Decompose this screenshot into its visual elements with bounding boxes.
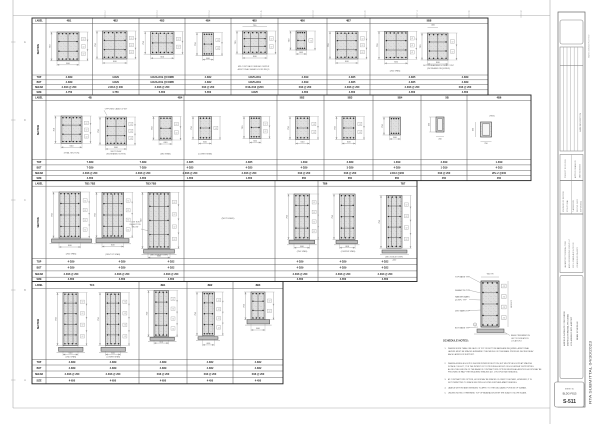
svg-text:#2: #2 bbox=[84, 220, 86, 222]
svg-text:BEAM SCHEDULE: BEAM SCHEDULE bbox=[576, 321, 579, 340]
svg-text:#2: #2 bbox=[130, 38, 132, 40]
svg-text:#2: #2 bbox=[411, 52, 413, 54]
svg-text:4B1: 4B1 bbox=[67, 19, 72, 23]
svg-text:4B4: 4B4 bbox=[206, 19, 211, 23]
svg-text:4-650: 4-650 bbox=[340, 278, 347, 281]
svg-text:4-D29: 4-D29 bbox=[68, 260, 75, 263]
svg-text:SCHEDULE NOTES:: SCHEDULE NOTES: bbox=[443, 339, 469, 343]
svg-text:(NOT USED): (NOT USED) bbox=[222, 218, 235, 220]
svg-text:#2: #2 bbox=[405, 239, 407, 241]
svg-text:T. ANDERSON: T. ANDERSON bbox=[572, 199, 575, 212]
svg-text:(2) SPC TYP: (2) SPC TYP bbox=[455, 299, 467, 301]
svg-text:#2: #2 bbox=[172, 328, 174, 330]
svg-text:HANGER BARS: HANGER BARS bbox=[455, 296, 470, 299]
svg-text:BOT: BOT bbox=[37, 267, 42, 269]
svg-text:#2: #2 bbox=[411, 38, 413, 40]
svg-text:4-D22: 4-D22 bbox=[168, 266, 175, 269]
svg-text:2-D19: 2-D19 bbox=[302, 81, 309, 84]
svg-text:4-D22: 4-D22 bbox=[255, 367, 262, 370]
svg-text:4-D22: 4-D22 bbox=[382, 266, 389, 269]
svg-text:#2: #2 bbox=[264, 124, 266, 126]
svg-text:7B7: 7B7 bbox=[401, 181, 406, 185]
svg-text:4-D29: 4-D29 bbox=[110, 361, 117, 364]
svg-text:5B4: 5B4 bbox=[398, 96, 403, 100]
svg-text:(2ND/TOP SPAN): (2ND/TOP SPAN) bbox=[105, 253, 120, 256]
svg-text:SECTION AT: SECTION AT bbox=[110, 150, 122, 153]
svg-text:#2: #2 bbox=[173, 227, 175, 229]
svg-text:#2: #2 bbox=[130, 124, 132, 126]
svg-text:3-D29: 3-D29 bbox=[347, 161, 354, 164]
svg-text:#2: #2 bbox=[217, 40, 219, 42]
svg-text:#2: #2 bbox=[313, 202, 315, 204]
svg-text:2-D16 @ 200: 2-D16 @ 200 bbox=[336, 273, 351, 276]
svg-text:4-D29: 4-D29 bbox=[301, 166, 308, 169]
svg-text:#2: #2 bbox=[177, 39, 179, 41]
svg-text:#2: #2 bbox=[218, 300, 220, 302]
svg-text:2-D16 @ 200: 2-D16 @ 200 bbox=[405, 86, 420, 89]
svg-text:4-D29: 4-D29 bbox=[112, 76, 119, 79]
svg-text:LAX AIRPORT TERMINAL CORE: LAX AIRPORT TERMINAL CORE bbox=[564, 240, 567, 268]
svg-text:#2: #2 bbox=[359, 124, 361, 126]
svg-text:#2: #2 bbox=[264, 131, 266, 133]
svg-text:TOP: TOP bbox=[37, 362, 42, 364]
svg-text:4-650: 4-650 bbox=[160, 379, 167, 382]
svg-text:(SECTION AT STEP): (SECTION AT STEP) bbox=[150, 254, 168, 257]
svg-text:#2: #2 bbox=[130, 138, 132, 140]
svg-text:4-D29: 4-D29 bbox=[340, 266, 347, 269]
svg-text:2-650: 2-650 bbox=[302, 91, 309, 94]
svg-text:4-D22+D19 @COMB: 4-D22+D19 @COMB bbox=[150, 81, 174, 84]
svg-text:LOS ANGELES INTL AIRPORT: LOS ANGELES INTL AIRPORT bbox=[570, 316, 573, 346]
svg-text:#2: #2 bbox=[451, 51, 453, 53]
svg-text:#2: #2 bbox=[313, 132, 315, 134]
svg-text:4B5: 4B5 bbox=[252, 19, 257, 23]
svg-text:#2: #2 bbox=[218, 309, 220, 311]
svg-text:4-D22: 4-D22 bbox=[207, 361, 214, 364]
svg-text:7-D29: 7-D29 bbox=[87, 166, 94, 169]
svg-text:#2: #2 bbox=[361, 38, 363, 40]
svg-text:7B6: 7B6 bbox=[323, 181, 328, 185]
svg-text:4-D25: 4-D25 bbox=[251, 91, 258, 94]
svg-text:SHEAR: SHEAR bbox=[35, 86, 43, 89]
svg-text:D16 @ 200: D16 @ 200 bbox=[459, 86, 472, 89]
svg-text:4-650: 4-650 bbox=[68, 278, 75, 281]
svg-text:4-650: 4-650 bbox=[409, 91, 416, 94]
svg-text:#2: #2 bbox=[268, 311, 270, 313]
svg-text:2Px-2 @200: 2Px-2 @200 bbox=[492, 172, 507, 175]
svg-text:450: 450 bbox=[497, 177, 502, 180]
svg-text:#2: #2 bbox=[173, 239, 175, 241]
svg-text:#2: #2 bbox=[173, 214, 175, 216]
svg-text:#2: #2 bbox=[313, 222, 315, 224]
svg-text:#2: #2 bbox=[127, 229, 129, 231]
svg-text:SHEAR: SHEAR bbox=[35, 373, 43, 376]
svg-text:ADDITIONAL SHEAR HOOKS REQD: ADDITIONAL SHEAR HOOKS REQD bbox=[238, 68, 270, 71]
svg-text:5B3: 5B3 bbox=[348, 96, 353, 100]
svg-text:DATE 04/30/2023: DATE 04/30/2023 bbox=[579, 164, 582, 178]
svg-text:NOT PERMITTED TO SPACE MULTIPL: NOT PERMITTED TO SPACE MULTIPLE HOOPED F… bbox=[448, 381, 518, 384]
svg-text:#2: #2 bbox=[124, 313, 126, 315]
svg-text:#2: #2 bbox=[177, 47, 179, 49]
svg-text:4-D13: 4-D13 bbox=[496, 166, 503, 169]
svg-text:4-D29: 4-D29 bbox=[160, 367, 167, 370]
svg-text:1-D19: 1-D19 bbox=[394, 161, 401, 164]
svg-text:4-D25: 4-D25 bbox=[409, 81, 416, 84]
svg-text:4-650: 4-650 bbox=[69, 379, 76, 382]
svg-text:SECTION: SECTION bbox=[38, 217, 40, 228]
svg-text:DIST BARS TYP: DIST BARS TYP bbox=[455, 310, 471, 313]
svg-text:#2: #2 bbox=[81, 302, 83, 304]
svg-text:4-D25: 4-D25 bbox=[409, 76, 416, 79]
svg-text:4-750: 4-750 bbox=[112, 91, 119, 94]
svg-text:#2: #2 bbox=[130, 52, 132, 54]
svg-text:#2: #2 bbox=[361, 52, 363, 54]
svg-text:#2: #2 bbox=[270, 46, 272, 48]
svg-text:#2: #2 bbox=[175, 124, 177, 126]
svg-text:LABEL: LABEL bbox=[35, 284, 43, 287]
svg-text:4-450: 4-450 bbox=[207, 379, 214, 382]
svg-text:SECTION: SECTION bbox=[38, 125, 40, 136]
svg-text:BOT: BOT bbox=[37, 368, 42, 370]
svg-text:(LOWER SPAN): (LOWER SPAN) bbox=[198, 153, 212, 156]
svg-text:4-D29: 4-D29 bbox=[110, 367, 117, 370]
svg-text:4-D25: 4-D25 bbox=[349, 81, 356, 84]
svg-text:5B: 5B bbox=[445, 96, 448, 100]
svg-text:BOT: BOT bbox=[37, 82, 42, 84]
svg-text:(SECTION AT STEP): (SECTION AT STEP) bbox=[385, 256, 403, 259]
svg-text:ARCH ENGINEERING GROUP LLP: ARCH ENGINEERING GROUP LLP bbox=[568, 238, 571, 268]
svg-text:4B2: 4B2 bbox=[113, 19, 118, 23]
svg-text:#2: #2 bbox=[82, 39, 84, 41]
svg-text:5-650: 5-650 bbox=[159, 91, 166, 94]
svg-text:(INCREASED NOTES): (INCREASED NOTES) bbox=[106, 153, 126, 156]
svg-text:SIZE: SIZE bbox=[36, 178, 42, 180]
svg-text:4B4: 4B4 bbox=[178, 96, 183, 100]
svg-text:4B6: 4B6 bbox=[497, 96, 502, 100]
svg-text:LABEL: LABEL bbox=[35, 97, 43, 100]
svg-text:(2ND SPAN): (2ND SPAN) bbox=[66, 355, 77, 358]
svg-text:2-D13 @200: 2-D13 @200 bbox=[390, 172, 405, 175]
svg-text:EACH LAYER FOR SUPPORT.: EACH LAYER FOR SUPPORT. bbox=[448, 353, 475, 356]
svg-text:2-D16 @ 200: 2-D16 @ 200 bbox=[136, 172, 151, 175]
svg-text:(2ND SPAN): (2ND SPAN) bbox=[390, 69, 401, 72]
svg-text:4-D25: 4-D25 bbox=[246, 161, 253, 164]
svg-text:#2: #2 bbox=[313, 231, 315, 233]
svg-text:WIDTH: WIDTH bbox=[487, 274, 494, 276]
svg-text:D13 @ 200: D13 @ 200 bbox=[204, 373, 217, 376]
svg-text:2-D16 @ 200: 2-D16 @ 200 bbox=[293, 273, 308, 276]
svg-text:MIDFIELD TERMINAL PROGRAM: MIDFIELD TERMINAL PROGRAM bbox=[567, 314, 570, 346]
svg-text:1-D19: 1-D19 bbox=[496, 161, 503, 164]
svg-text:NOTCH BEAM AND HI DEAL CONT: NOTCH BEAM AND HI DEAL CONT bbox=[423, 64, 455, 67]
svg-text:ALONG THE LENGTH OF THE BEAM.: ALONG THE LENGTH OF THE BEAM. IF CONTRAC… bbox=[448, 368, 542, 371]
svg-text:8B1: 8B1 bbox=[161, 283, 166, 287]
svg-text:2-D16 @ 200: 2-D16 @ 200 bbox=[115, 273, 130, 276]
svg-text:1-650: 1-650 bbox=[187, 177, 194, 180]
svg-text:#2: #2 bbox=[218, 327, 220, 329]
svg-text:#2: #2 bbox=[215, 128, 217, 130]
svg-text:4-650: 4-650 bbox=[168, 278, 175, 281]
svg-text:#2: #2 bbox=[124, 325, 126, 327]
svg-text:4-D29: 4-D29 bbox=[112, 81, 119, 84]
svg-text:350 S. GRAND AVE SUITE 100: 350 S. GRAND AVE SUITE 100 bbox=[572, 243, 575, 268]
svg-text:4-D25+D19: 4-D25+D19 bbox=[248, 76, 261, 79]
svg-text:#2: #2 bbox=[127, 220, 129, 222]
svg-text:2-D13 @ 200: 2-D13 @ 200 bbox=[164, 273, 179, 276]
svg-text:(INCREASED REQUIRED): (INCREASED REQUIRED) bbox=[427, 67, 450, 70]
svg-text:4-D29: 4-D29 bbox=[340, 260, 347, 263]
svg-text:#2: #2 bbox=[85, 136, 87, 138]
svg-text:TOP: TOP bbox=[37, 261, 42, 263]
svg-text:1-650: 1-650 bbox=[246, 177, 253, 180]
svg-text:5B2: 5B2 bbox=[300, 96, 305, 100]
svg-text:ENGINEER OF RECORD: ENGINEER OF RECORD bbox=[563, 191, 565, 212]
svg-text:LABELS WITH RV ARE INTENDED TO: LABELS WITH RV ARE INTENDED TO APPLY TO … bbox=[448, 387, 527, 390]
svg-text:#2: #2 bbox=[175, 132, 177, 134]
svg-text:SHEAR: SHEAR bbox=[35, 172, 43, 175]
svg-text:TOP: TOP bbox=[37, 77, 42, 79]
svg-text:SHEET ID: SHEET ID bbox=[565, 389, 575, 391]
svg-text:#2: #2 bbox=[127, 201, 129, 203]
svg-text:#2: #2 bbox=[130, 131, 132, 133]
svg-text:HEIGHT: HEIGHT bbox=[511, 299, 513, 307]
svg-text:APPD BY DRAWN BY: APPD BY DRAWN BY bbox=[574, 159, 577, 178]
svg-text:SECTION: SECTION bbox=[38, 44, 40, 55]
svg-text:650: 650 bbox=[302, 177, 307, 180]
svg-text:SHEAR TIE TYP: SHEAR TIE TYP bbox=[455, 289, 471, 292]
svg-text:4-650: 4-650 bbox=[382, 278, 389, 281]
svg-text:(MID SPAN): (MID SPAN) bbox=[160, 153, 171, 156]
svg-text:5-650: 5-650 bbox=[205, 91, 212, 94]
svg-text:D16+D13 @200: D16+D13 @200 bbox=[246, 86, 265, 89]
svg-text:#2: #2 bbox=[84, 210, 86, 212]
svg-text:4-D22: 4-D22 bbox=[207, 367, 214, 370]
svg-text:4-D29: 4-D29 bbox=[297, 260, 304, 263]
svg-text:WHERE MORE THAN ONE JACK OF TO: WHERE MORE THAN ONE JACK OF TOP OR BOTTO… bbox=[448, 347, 529, 350]
svg-text:(CENTER SPAN): (CENTER SPAN) bbox=[341, 250, 356, 253]
svg-text:D16 @ 200: D16 @ 200 bbox=[157, 373, 170, 376]
svg-text:OPPOSED CABLE @ W/T: OPPOSED CABLE @ W/T bbox=[105, 107, 128, 110]
svg-text:#2: #2 bbox=[270, 38, 272, 40]
svg-text:#2: #2 bbox=[217, 48, 219, 50]
svg-text:#2: #2 bbox=[451, 41, 453, 43]
svg-text:EXP 06/30/24: EXP 06/30/24 bbox=[581, 201, 583, 212]
svg-text:4B6: 4B6 bbox=[300, 19, 305, 23]
svg-text:D16 @ 200: D16 @ 200 bbox=[252, 373, 265, 376]
svg-text:RTA SUBMITTAL 04/30/2023: RTA SUBMITTAL 04/30/2023 bbox=[588, 340, 593, 404]
svg-text:#2: #2 bbox=[124, 336, 126, 338]
svg-text:#2: #2 bbox=[81, 325, 83, 327]
svg-text:4-650: 4-650 bbox=[297, 278, 304, 281]
svg-text:#2: #2 bbox=[411, 45, 413, 47]
svg-text:SECTION: SECTION bbox=[38, 319, 40, 330]
svg-text:2-D13 @ 200: 2-D13 @ 200 bbox=[62, 86, 77, 89]
svg-text:#2: #2 bbox=[85, 130, 87, 132]
svg-text:#2: #2 bbox=[313, 212, 315, 214]
svg-text:LABEL: LABEL bbox=[35, 20, 43, 23]
svg-text:4-D29: 4-D29 bbox=[69, 361, 76, 364]
svg-text:BLDG-F815: BLDG-F815 bbox=[563, 392, 577, 396]
svg-text:650: 650 bbox=[395, 177, 400, 180]
svg-text:(HSS): (HSS) bbox=[489, 116, 495, 118]
svg-text:4-D29: 4-D29 bbox=[69, 367, 76, 370]
svg-text:MID CONT BACK SIMILAR CENTER: MID CONT BACK SIMILAR CENTER bbox=[238, 65, 270, 68]
svg-text:7B3-7B5: 7B3-7B5 bbox=[146, 181, 157, 185]
svg-text:(2ND SPAN): (2ND SPAN) bbox=[66, 253, 77, 256]
svg-text:3-D29: 3-D29 bbox=[347, 166, 354, 169]
svg-text:#2: #2 bbox=[359, 132, 361, 134]
svg-text:UNLESS NOTED OTHERWISE, TOP OF: UNLESS NOTED OTHERWISE, TOP OF BEAM ALIG… bbox=[448, 392, 527, 395]
svg-text:2-D19: 2-D19 bbox=[441, 161, 448, 164]
svg-text:BASE PREPARATION: BASE PREPARATION bbox=[511, 334, 530, 337]
svg-text:S-511: S-511 bbox=[563, 399, 576, 405]
svg-text:4B: 4B bbox=[88, 96, 91, 100]
svg-text:#2: #2 bbox=[130, 45, 132, 47]
svg-text:450: 450 bbox=[442, 177, 447, 180]
svg-text:1-D19: 1-D19 bbox=[301, 161, 308, 164]
svg-text:LAYERS MUST BE SPACED EVENMINL: LAYERS MUST BE SPACED EVENMINLY THE MIDD… bbox=[448, 350, 534, 353]
svg-text:4-650: 4-650 bbox=[110, 379, 117, 382]
svg-text:#2: #2 bbox=[268, 301, 270, 303]
svg-text:2-D25: 2-D25 bbox=[187, 161, 194, 164]
svg-text:#2: #2 bbox=[81, 313, 83, 315]
svg-text:4-D29: 4-D29 bbox=[66, 81, 73, 84]
svg-text:#2: #2 bbox=[405, 216, 407, 218]
svg-text:AT CONTRACTORS OPTION, HOOKS M: AT CONTRACTORS OPTION, HOOKS MAY BE SPAC… bbox=[448, 378, 532, 381]
svg-text:4-D22: 4-D22 bbox=[382, 260, 389, 263]
svg-text:4-650: 4-650 bbox=[140, 177, 147, 180]
svg-text:(TRIAL SECTION): (TRIAL SECTION) bbox=[64, 151, 80, 154]
svg-text:7-D29: 7-D29 bbox=[140, 166, 147, 169]
svg-text:AIRFIELD SATELLITE CONCOURSE: AIRFIELD SATELLITE CONCOURSE bbox=[563, 311, 566, 346]
svg-text:2-D13 @ 200: 2-D13 @ 200 bbox=[108, 86, 123, 89]
svg-text:2-D16 @ 200: 2-D16 @ 200 bbox=[183, 172, 198, 175]
svg-text:4-750: 4-750 bbox=[66, 91, 73, 94]
svg-text:#2: #2 bbox=[82, 54, 84, 56]
svg-text:4-D29: 4-D29 bbox=[119, 260, 126, 263]
svg-text:2-D16 @ 200: 2-D16 @ 200 bbox=[83, 172, 98, 175]
svg-text:7-D29: 7-D29 bbox=[140, 161, 147, 164]
svg-text:PROJECT NO 21-0529: PROJECT NO 21-0529 bbox=[565, 159, 567, 178]
svg-text:4-D29: 4-D29 bbox=[119, 266, 126, 269]
svg-text:SAVED 4/28/2023 PLOTTED: SAVED 4/28/2023 PLOTTED bbox=[588, 34, 591, 58]
svg-text:4-650: 4-650 bbox=[119, 278, 126, 281]
svg-text:TOP: TOP bbox=[37, 162, 42, 164]
svg-text:4-D29: 4-D29 bbox=[462, 76, 469, 79]
svg-text:4-D29: 4-D29 bbox=[160, 361, 167, 364]
svg-text:#2: #2 bbox=[84, 200, 86, 202]
svg-text:#2: #2 bbox=[172, 309, 174, 311]
svg-text:4-D22: 4-D22 bbox=[205, 76, 212, 79]
svg-text:BOT: BOT bbox=[37, 167, 42, 169]
svg-text:(2ND SPAN): (2ND SPAN) bbox=[297, 250, 308, 253]
svg-text:+400: +400 bbox=[392, 260, 396, 262]
svg-text:#2: #2 bbox=[405, 205, 407, 207]
svg-text:#2: #2 bbox=[173, 202, 175, 204]
svg-text:#2: #2 bbox=[82, 46, 84, 48]
svg-text:7C4: 7C4 bbox=[90, 283, 95, 287]
svg-text:#2: #2 bbox=[218, 318, 220, 320]
svg-text:4-D29: 4-D29 bbox=[462, 81, 469, 84]
svg-text:1: 1 bbox=[475, 324, 476, 326]
svg-text:LABEL: LABEL bbox=[35, 182, 43, 185]
svg-text:4B7: 4B7 bbox=[346, 19, 351, 23]
svg-text:4-650: 4-650 bbox=[462, 91, 469, 94]
svg-text:1-D19: 1-D19 bbox=[441, 166, 448, 169]
svg-text:4-D22: 4-D22 bbox=[205, 81, 212, 84]
svg-text:4-D25+D19: 4-D25+D19 bbox=[248, 81, 261, 84]
svg-text:2-D16 @ 200: 2-D16 @ 200 bbox=[64, 273, 79, 276]
svg-text:SIZE: SIZE bbox=[36, 279, 42, 281]
svg-text:8B3: 8B3 bbox=[256, 283, 261, 287]
svg-text:4-D22: 4-D22 bbox=[168, 260, 175, 263]
svg-text:TOP BARS TYP: TOP BARS TYP bbox=[455, 276, 470, 279]
svg-text:8B2: 8B2 bbox=[208, 283, 213, 287]
svg-text:#2: #2 bbox=[81, 336, 83, 338]
svg-text:#2: #2 bbox=[84, 230, 86, 232]
svg-text:#2: #2 bbox=[85, 123, 87, 125]
svg-text:LOCATION #: LOCATION # bbox=[511, 340, 523, 343]
svg-text:LEFT FOUNDATION: LEFT FOUNDATION bbox=[511, 337, 529, 340]
svg-text:STRUCTURAL: STRUCTURAL bbox=[566, 200, 569, 212]
svg-text:SIZE: SIZE bbox=[36, 380, 42, 382]
svg-text:SIZE: SIZE bbox=[36, 92, 42, 94]
svg-text:4-450: 4-450 bbox=[255, 379, 262, 382]
svg-text:4-D29: 4-D29 bbox=[68, 266, 75, 269]
svg-text:2-D13 @ 200: 2-D13 @ 200 bbox=[378, 273, 393, 276]
svg-text:#2: #2 bbox=[172, 299, 174, 301]
svg-text:D13 @ 200: D13 @ 200 bbox=[202, 86, 215, 89]
svg-text:2-D16 @ 200: 2-D16 @ 200 bbox=[345, 86, 360, 89]
svg-text:(LOWER SPAN): (LOWER SPAN) bbox=[106, 355, 120, 358]
svg-text:2-D16 @ 200: 2-D16 @ 200 bbox=[65, 373, 80, 376]
svg-text:7-D29: 7-D29 bbox=[87, 161, 94, 164]
svg-text:4-D29: 4-D29 bbox=[394, 166, 401, 169]
svg-text:#2: #2 bbox=[124, 302, 126, 304]
svg-text:4-650: 4-650 bbox=[87, 177, 94, 180]
svg-text:LOS ANGELES CA 90071: LOS ANGELES CA 90071 bbox=[576, 247, 579, 268]
svg-text:650: 650 bbox=[348, 177, 353, 180]
svg-text:4-D29: 4-D29 bbox=[297, 266, 304, 269]
svg-text:2-D19: 2-D19 bbox=[302, 76, 309, 79]
svg-text:#2: #2 bbox=[127, 210, 129, 212]
svg-text:5B8: 5B8 bbox=[427, 19, 432, 23]
svg-text:REG NO. 54211: REG NO. 54211 bbox=[577, 199, 579, 212]
svg-text:2-D16 @ 200: 2-D16 @ 200 bbox=[155, 86, 170, 89]
svg-text:#2: #2 bbox=[405, 227, 407, 229]
svg-text:4-D25: 4-D25 bbox=[246, 166, 253, 169]
svg-text:#2: #2 bbox=[172, 319, 174, 321]
svg-text:4-D29: 4-D29 bbox=[66, 76, 73, 79]
svg-text:#2: #2 bbox=[361, 45, 363, 47]
svg-text:PROVIDED IN HALF THE REQUIRED: PROVIDED IN HALF THE REQUIRED SPACING (I… bbox=[448, 371, 518, 374]
svg-text:D13 @ 200: D13 @ 200 bbox=[298, 172, 311, 175]
svg-text:D13 @ 200: D13 @ 200 bbox=[299, 86, 312, 89]
svg-text:BOT BARS TYP: BOT BARS TYP bbox=[455, 327, 470, 330]
svg-text:IS TAKE COLLECT, IT IS THE INT: IS TAKE COLLECT, IT IS THE INTENT OF TO … bbox=[448, 365, 534, 368]
svg-text:4B3: 4B3 bbox=[160, 19, 165, 23]
svg-text:MARK DESCRIPTION: MARK DESCRIPTION bbox=[579, 112, 582, 132]
svg-text:#2: #2 bbox=[310, 40, 312, 42]
svg-text:4-D25: 4-D25 bbox=[349, 76, 356, 79]
svg-text:4-D22: 4-D22 bbox=[255, 361, 262, 364]
svg-text:D13 @ 200: D13 @ 200 bbox=[438, 172, 451, 175]
svg-text:7B1-7B2: 7B1-7B2 bbox=[85, 181, 96, 185]
svg-text:4-D25: 4-D25 bbox=[187, 166, 194, 169]
svg-text:2-D16 @ 200: 2-D16 @ 200 bbox=[242, 172, 257, 175]
svg-text:BELOW: BELOW bbox=[132, 227, 139, 229]
svg-text:4-650: 4-650 bbox=[349, 91, 356, 94]
